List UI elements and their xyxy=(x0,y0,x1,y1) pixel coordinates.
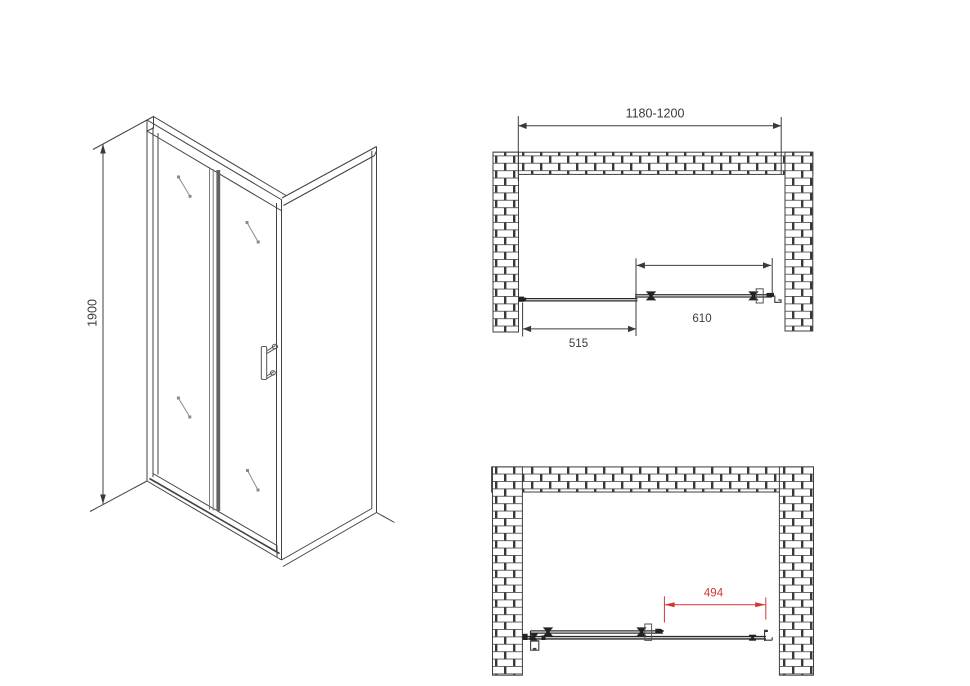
svg-text:494: 494 xyxy=(704,588,724,600)
svg-text:1900: 1900 xyxy=(86,299,100,327)
svg-text:1180-1200: 1180-1200 xyxy=(626,107,685,121)
svg-text:610: 610 xyxy=(692,313,711,325)
svg-text:515: 515 xyxy=(569,338,588,350)
